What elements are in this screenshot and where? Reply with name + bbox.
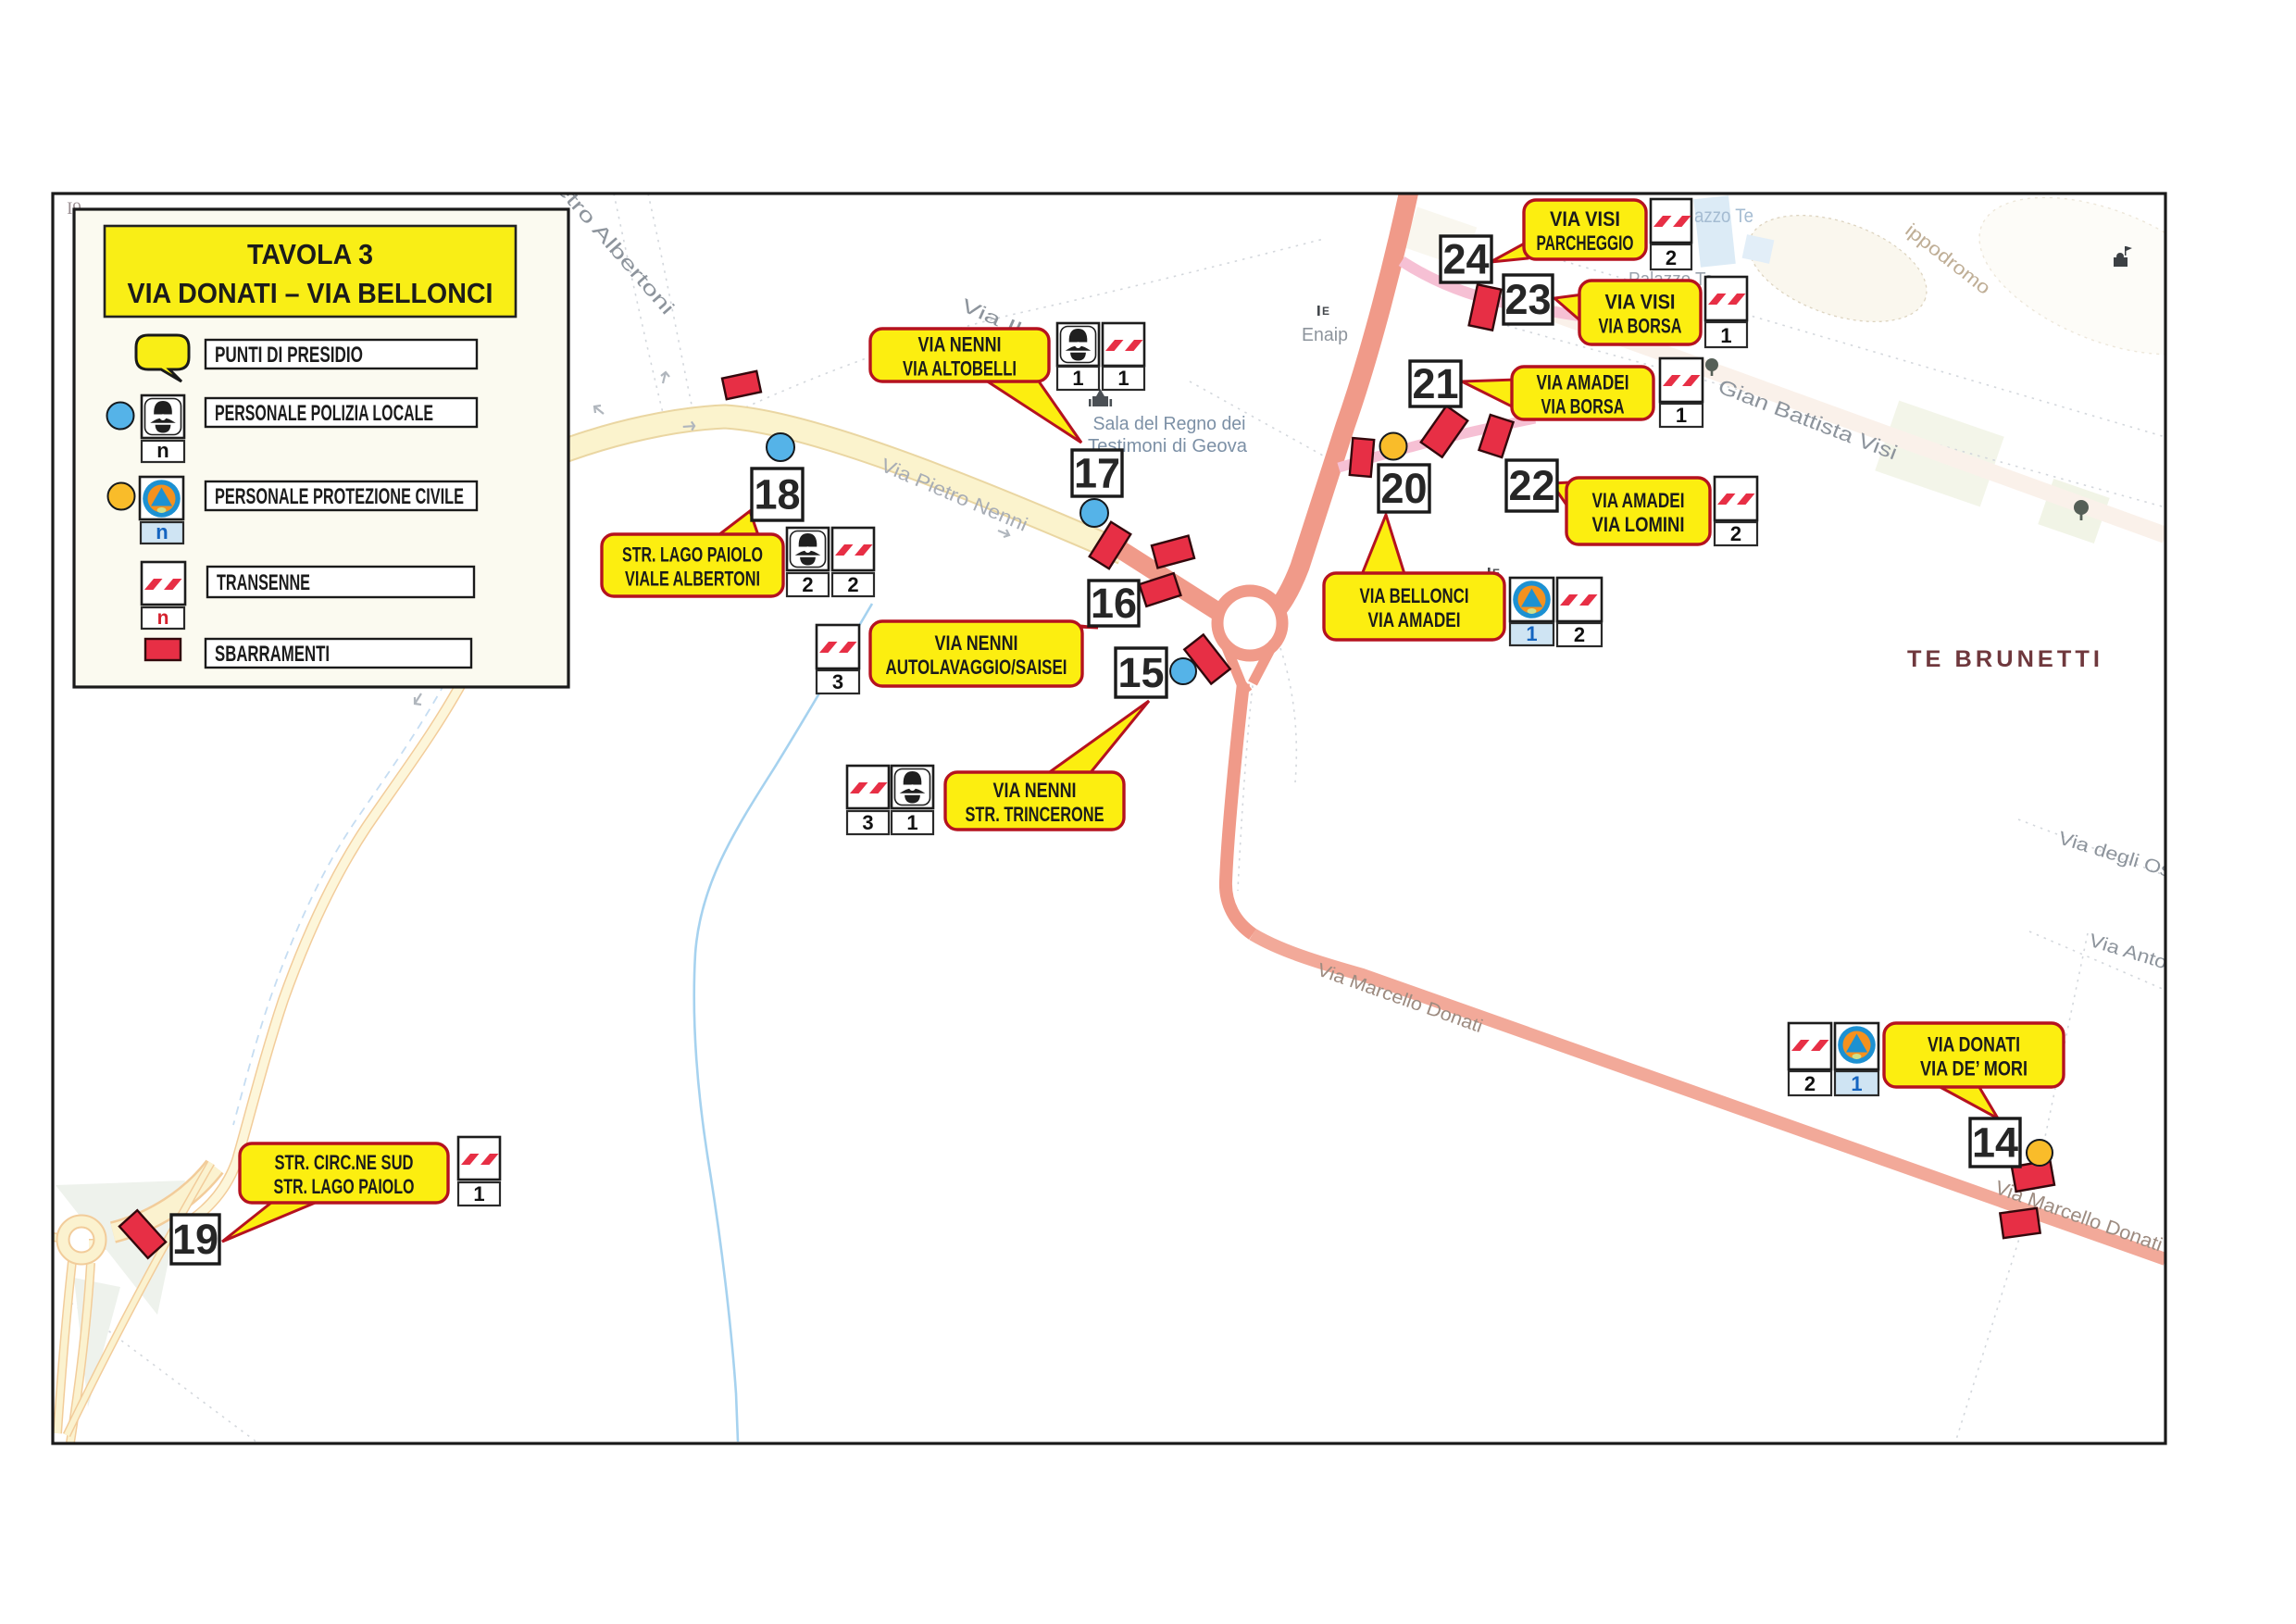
svg-text:STR. TRINCERONE: STR. TRINCERONE: [966, 803, 1104, 826]
svg-text:VIA DE’ MORI: VIA DE’ MORI: [1920, 1057, 2028, 1081]
svg-text:17: 17: [1074, 450, 1120, 497]
svg-text:2: 2: [1666, 246, 1677, 269]
svg-text:STR. LAGO PAIOLO: STR. LAGO PAIOLO: [622, 543, 763, 567]
svg-text:3: 3: [862, 811, 873, 834]
svg-text:1: 1: [473, 1182, 484, 1206]
svg-text:3: 3: [832, 670, 843, 693]
svg-text:PERSONALE PROTEZIONE CIVILE: PERSONALE PROTEZIONE CIVILE: [215, 484, 464, 509]
svg-text:n: n: [156, 520, 168, 543]
svg-text:21: 21: [1412, 360, 1458, 407]
svg-text:VIA BORSA: VIA BORSA: [1541, 395, 1625, 418]
svg-text:16: 16: [1091, 580, 1137, 627]
svg-text:14: 14: [1972, 1119, 2018, 1167]
svg-text:1: 1: [906, 811, 917, 834]
svg-text:VIA LOMINI: VIA LOMINI: [1592, 513, 1685, 536]
svg-text:1: 1: [1851, 1072, 1862, 1095]
svg-text:VIA ALTOBELLI: VIA ALTOBELLI: [903, 357, 1017, 381]
svg-text:TRANSENNE: TRANSENNE: [217, 570, 310, 595]
svg-text:VIA AMADEI: VIA AMADEI: [1537, 371, 1629, 394]
svg-text:22: 22: [1508, 462, 1554, 509]
svg-text:PERSONALE POLIZIA LOCALE: PERSONALE POLIZIA LOCALE: [215, 401, 433, 426]
svg-text:VIA DONATI – VIA BELLONCI: VIA DONATI – VIA BELLONCI: [128, 277, 493, 309]
svg-text:23: 23: [1504, 276, 1551, 323]
svg-text:1: 1: [1720, 324, 1731, 347]
svg-text:VIA DONATI: VIA DONATI: [1928, 1033, 2020, 1056]
svg-text:20: 20: [1380, 465, 1427, 512]
svg-text:VIALE ALBERTONI: VIALE ALBERTONI: [625, 568, 760, 591]
svg-text:VIA BORSA: VIA BORSA: [1599, 315, 1682, 338]
svg-text:azzo Te: azzo Te: [1694, 206, 1753, 227]
svg-text:1: 1: [1072, 367, 1083, 390]
svg-text:1: 1: [1676, 404, 1687, 427]
svg-text:STR. LAGO PAIOLO: STR. LAGO PAIOLO: [274, 1175, 415, 1198]
svg-text:PARCHEGGIO: PARCHEGGIO: [1537, 231, 1634, 255]
svg-text:24: 24: [1442, 236, 1489, 283]
svg-text:2: 2: [1730, 522, 1741, 545]
svg-text:VIA AMADEI: VIA AMADEI: [1368, 608, 1461, 631]
svg-text:Enaip: Enaip: [1302, 325, 1348, 345]
svg-text:VIA NENNI: VIA NENNI: [918, 333, 1002, 356]
svg-text:2: 2: [802, 573, 813, 596]
svg-text:2: 2: [1804, 1072, 1816, 1095]
svg-text:2: 2: [847, 573, 858, 596]
svg-text:1: 1: [1117, 367, 1129, 390]
svg-text:E: E: [1322, 305, 1329, 318]
svg-text:n: n: [157, 607, 169, 629]
svg-text:1: 1: [1526, 622, 1537, 645]
svg-text:AUTOLAVAGGIO/SAISEI: AUTOLAVAGGIO/SAISEI: [886, 656, 1067, 679]
svg-text:15: 15: [1117, 649, 1164, 696]
svg-text:VIA AMADEI: VIA AMADEI: [1592, 489, 1685, 512]
svg-text:VIA BELLONCI: VIA BELLONCI: [1360, 584, 1469, 607]
svg-text:n: n: [156, 439, 168, 462]
svg-text:PUNTI DI PRESIDIO: PUNTI DI PRESIDIO: [215, 343, 363, 368]
svg-text:Sala del Regno dei: Sala del Regno dei: [1093, 414, 1246, 434]
svg-text:2: 2: [1574, 623, 1585, 646]
svg-text:VIA VISI: VIA VISI: [1605, 291, 1676, 314]
svg-text:19: 19: [172, 1216, 218, 1263]
svg-text:VIA NENNI: VIA NENNI: [935, 631, 1018, 655]
svg-text:TE BRUNETTI: TE BRUNETTI: [1907, 646, 2103, 672]
svg-text:18: 18: [754, 471, 800, 518]
svg-text:VIA NENNI: VIA NENNI: [993, 779, 1077, 802]
svg-text:VIA VISI: VIA VISI: [1550, 207, 1620, 231]
svg-text:TAVOLA 3: TAVOLA 3: [247, 238, 373, 270]
svg-text:SBARRAMENTI: SBARRAMENTI: [215, 642, 330, 667]
svg-text:STR. CIRC.NE SUD: STR. CIRC.NE SUD: [275, 1151, 414, 1174]
